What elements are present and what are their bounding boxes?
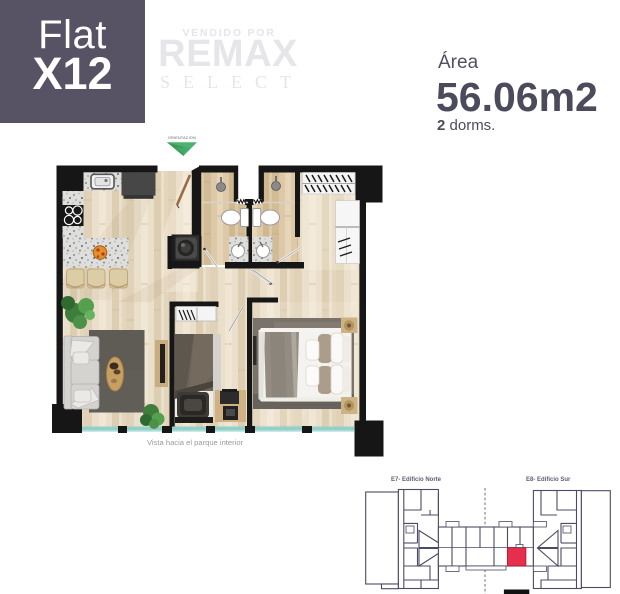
svg-text:ORIENTACION: ORIENTACION — [168, 136, 196, 140]
